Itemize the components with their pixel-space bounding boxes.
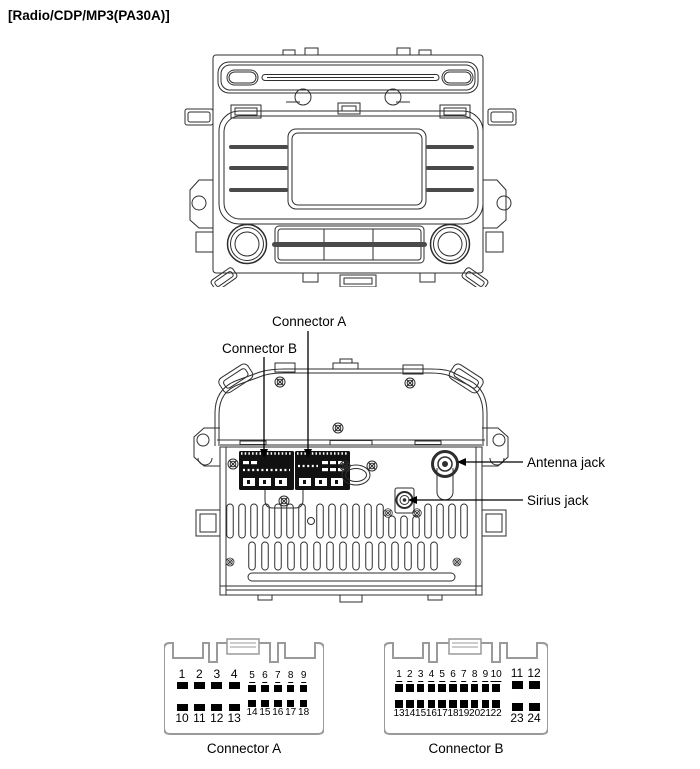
connector-a-pin-13 (229, 704, 240, 711)
connector-b-pin-4 (428, 684, 436, 692)
connector-a-pin-10 (177, 704, 188, 711)
connector-b-pin-2 (406, 684, 414, 692)
connector-b-pin-number-9: 9 (483, 670, 489, 682)
connector-b-pin-number-16: 16 (426, 709, 437, 719)
connector-a-pin-number-15: 15 (259, 708, 270, 718)
connector-a-pin-11 (194, 704, 205, 711)
connector-b-pin-number-11: 11 (511, 667, 523, 679)
connector-a-pin-number-6: 6 (262, 671, 268, 683)
connector-a-pin-12 (211, 704, 222, 711)
connector-b-pin-number-17: 17 (437, 709, 448, 719)
connector-a-pin-5 (248, 685, 256, 693)
connector-a-pin-1 (177, 682, 188, 689)
connector-a-pin-number-17: 17 (285, 708, 296, 718)
connector-a-pin-number-3: 3 (213, 668, 220, 680)
connector-b-pin-number-7: 7 (461, 670, 467, 682)
connector-a-pin-number-12: 12 (210, 712, 223, 724)
connector-b-pin-17 (438, 700, 446, 708)
connector-b-pin-number-20: 20 (469, 709, 480, 719)
connector-b-pin-number-22: 22 (491, 709, 502, 719)
connector-a-pin-number-16: 16 (272, 708, 283, 718)
connector-a-pin-number-11: 11 (193, 712, 205, 724)
connector-b-pin-7 (460, 684, 468, 692)
connector-b-pin-22 (492, 700, 500, 708)
vent-slots-row2 (249, 542, 438, 570)
connector-b-pin-5 (438, 684, 446, 692)
connector-a-pin-number-18: 18 (298, 708, 309, 718)
connector-a-pin-2 (194, 682, 205, 689)
connector-b-pin-number-5: 5 (439, 670, 445, 682)
connector-b-pin-23 (512, 703, 523, 711)
connector-b-pin-number-15: 15 (415, 709, 426, 719)
connector-b-pin-number-4: 4 (429, 670, 435, 682)
button-strip (272, 226, 427, 263)
connector-b-pin-9 (482, 684, 490, 692)
connector-a-pin-8 (287, 685, 295, 693)
connector-b-pin-number-24: 24 (527, 712, 540, 724)
connector-b-block (239, 451, 294, 490)
left-mount-ear (190, 180, 213, 228)
connector-b-pin-number-13: 13 (393, 709, 404, 719)
right-knob (431, 225, 470, 264)
connector-b-pin-number-12: 12 (527, 667, 540, 679)
connector-a-pin-number-4: 4 (231, 668, 238, 680)
connector-b-pin-3 (417, 684, 425, 692)
front-screw-post (385, 89, 401, 105)
connector-b-pin-20 (471, 700, 479, 708)
connector-b-pin-number-10: 10 (491, 670, 502, 682)
connector-b-pin-10 (492, 684, 500, 692)
connector-a-pin-4 (229, 682, 240, 689)
connector-a-pin-15 (261, 700, 269, 708)
connector-b-pin-number-18: 18 (447, 709, 458, 719)
sirius-jack-label: Sirius jack (527, 493, 589, 508)
antenna-jack (433, 452, 458, 501)
connector-b-pin-13 (395, 700, 403, 708)
connector-a-pin-9 (300, 685, 308, 693)
radio-front-view (183, 47, 520, 287)
page-title: [Radio/CDP/MP3(PA30A)] (8, 8, 170, 23)
vent-slots-row1 (227, 504, 468, 538)
connector-a-pin-14 (248, 700, 256, 708)
left-knob (228, 225, 267, 264)
connector-b-pin-24 (529, 703, 540, 711)
connector-a-pin-number-8: 8 (288, 671, 294, 683)
connector-b-pin-1 (395, 684, 403, 692)
radio-rear-view (190, 358, 512, 604)
connector-b-pin-11 (512, 681, 523, 689)
connector-a-pin-number-2: 2 (196, 668, 203, 680)
connector-b-pinout-label: Connector B (384, 741, 548, 756)
antenna-jack-label: Antenna jack (527, 455, 605, 470)
right-mount-ear (483, 180, 506, 228)
connector-a-pin-18 (300, 700, 308, 708)
connector-a-pin-number-13: 13 (228, 712, 241, 724)
sirius-jack (395, 488, 414, 513)
connector-b-pin-8 (471, 684, 479, 692)
side-buttons (229, 145, 474, 192)
connector-a-pin-16 (274, 700, 282, 708)
connector-a-callout-label: Connector A (272, 314, 346, 329)
front-screw-post (295, 89, 311, 105)
connector-b-pin-19 (460, 700, 468, 708)
connector-a-pin-number-9: 9 (301, 671, 307, 683)
connector-a-pinout-label: Connector A (164, 741, 324, 756)
connector-b-pin-number-6: 6 (450, 670, 456, 682)
connector-b-pinout: 123456789101112131415161718192021222324 (384, 643, 548, 734)
front-chassis (213, 55, 483, 273)
connector-a-pin-number-7: 7 (275, 671, 281, 683)
connector-b-pin-21 (482, 700, 490, 708)
connector-a-pin-number-5: 5 (249, 671, 255, 683)
connector-a-pin-number-10: 10 (175, 712, 188, 724)
connector-a-pin-17 (287, 700, 295, 708)
connector-b-pin-18 (449, 700, 457, 708)
rear-dome (215, 369, 487, 446)
connector-a-pinout: 123456789101112131415161718 (164, 643, 324, 734)
connector-b-pin-number-8: 8 (472, 670, 478, 682)
connector-b-pin-number-21: 21 (480, 709, 491, 719)
connector-b-pin-15 (417, 700, 425, 708)
connector-b-pin-12 (529, 681, 540, 689)
connector-b-pin-14 (406, 700, 414, 708)
connector-a-pin-3 (211, 682, 222, 689)
connector-a-pin-number-14: 14 (246, 708, 257, 718)
connector-b-pin-number-19: 19 (458, 709, 469, 719)
connector-b-pin-number-2: 2 (407, 670, 413, 682)
connector-b-pin-number-14: 14 (404, 709, 415, 719)
connector-a-block (295, 451, 350, 490)
connector-b-pin-number-3: 3 (418, 670, 424, 682)
connector-b-callout-label: Connector B (222, 341, 297, 356)
connector-b-pin-number-1: 1 (396, 670, 402, 682)
display (288, 129, 426, 209)
connector-b-pin-6 (449, 684, 457, 692)
connector-b-pin-number-23: 23 (510, 712, 523, 724)
connector-a-pin-7 (274, 685, 282, 693)
connector-b-pin-16 (428, 700, 436, 708)
connector-a-pin-number-1: 1 (179, 668, 186, 680)
diagram-canvas: [Radio/CDP/MP3(PA30A)] (0, 0, 700, 769)
connector-a-pin-6 (261, 685, 269, 693)
